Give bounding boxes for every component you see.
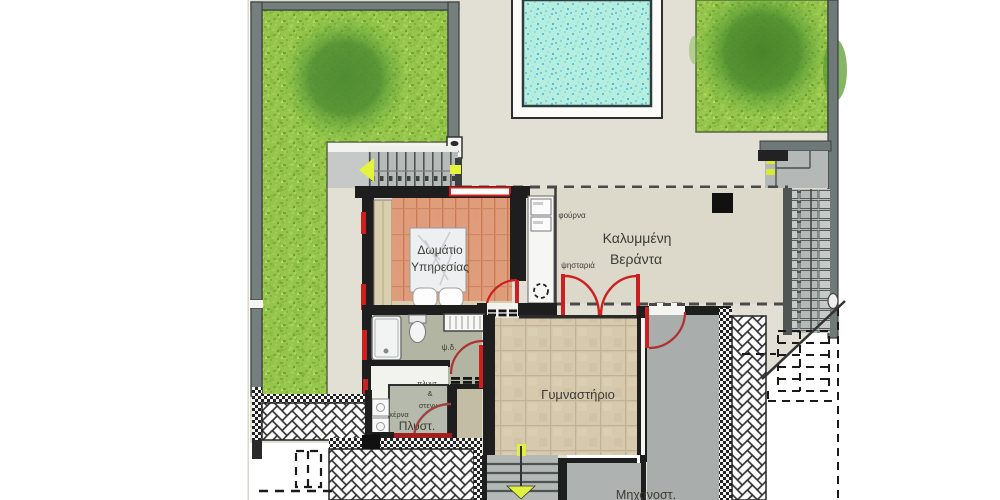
svg-text:Δωμάτιο: Δωμάτιο bbox=[417, 243, 463, 257]
svg-text:ψησταριά: ψησταριά bbox=[561, 261, 595, 270]
svg-text:Μηχανοστ.: Μηχανοστ. bbox=[616, 488, 676, 500]
svg-text:Υπηρεσίας: Υπηρεσίας bbox=[411, 260, 469, 274]
svg-text:Βεράντα: Βεράντα bbox=[610, 251, 662, 267]
svg-text:Καλυμμένη: Καλυμμένη bbox=[603, 230, 672, 246]
svg-text:ψ.δ.: ψ.δ. bbox=[442, 343, 457, 352]
svg-text:κέρνα: κέρνα bbox=[389, 410, 409, 419]
svg-text:πλυντ.: πλυντ. bbox=[417, 379, 439, 388]
svg-text:&: & bbox=[427, 389, 432, 398]
svg-text:φούρνα: φούρνα bbox=[558, 211, 586, 220]
svg-text:Γυμναστήριο: Γυμναστήριο bbox=[541, 387, 615, 402]
